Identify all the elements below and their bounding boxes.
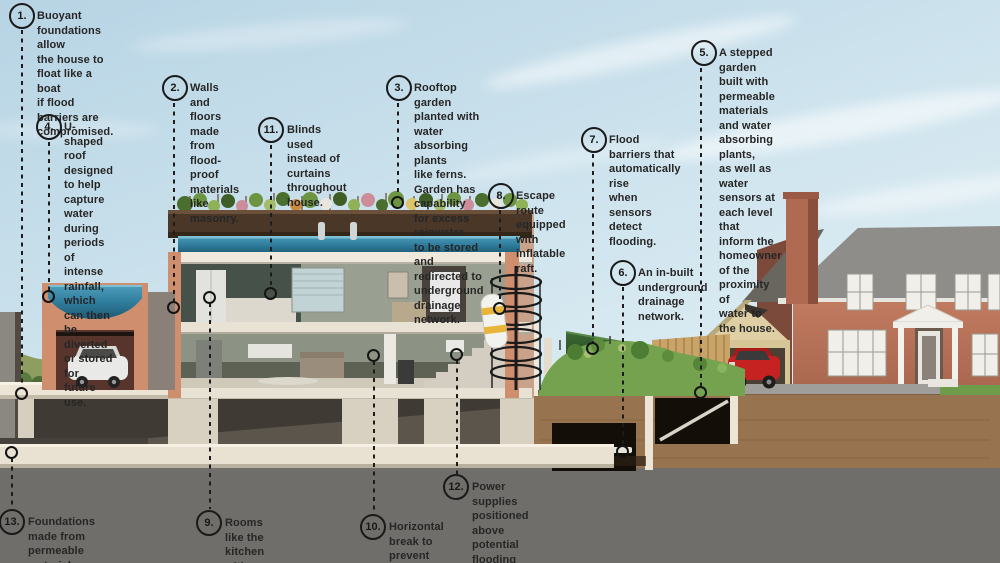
annotation-13-line: [11, 458, 13, 508]
annotation-5-text: A stepped garden built with permeable ma…: [719, 46, 782, 336]
front-steps: [928, 379, 958, 387]
annotation-4-line: [48, 142, 50, 292]
annotation-10-number: 10.: [360, 514, 386, 540]
annotation-11-number: 11.: [258, 117, 284, 143]
annotation-2-number: 2.: [162, 75, 188, 101]
annotation-12-number: 12.: [443, 474, 469, 500]
annotation-6-text: An in-built underground drainage network…: [638, 266, 708, 324]
annotation-9-text: Rooms like the kitchen with most valuabl…: [225, 516, 272, 563]
annotation-9-number: 9.: [196, 510, 222, 536]
annotation-5-number: 5.: [691, 40, 717, 66]
annotation-3-text: Rooftop garden planted with water absorb…: [414, 81, 484, 328]
annotation-3-number: 3.: [386, 75, 412, 101]
annotation-1-number: 1.: [9, 3, 35, 29]
annotation-5-anchor: [694, 386, 707, 399]
annotation-5-line: [700, 68, 702, 386]
annotation-8-line: [499, 210, 501, 303]
annotation-9-anchor: [203, 291, 216, 304]
annotation-2-anchor: [167, 301, 180, 314]
annotation-9-line: [209, 303, 211, 509]
annotation-13-text: Foundations made from permeable material…: [28, 515, 95, 563]
annotation-10-text: Horizontal break to prevent water damage…: [389, 520, 444, 563]
annotation-4-anchor: [42, 290, 55, 303]
annotation-13-anchor: [5, 446, 18, 459]
annotation-2-line: [173, 103, 175, 301]
annotation-7-line: [592, 154, 594, 343]
annotation-6-line: [622, 287, 624, 446]
infographic-stage: 1. Buoyant foundations allow the house t…: [0, 0, 1000, 563]
annotation-12-line: [456, 360, 458, 474]
annotation-8-text: Escape route equipped with inflatable ra…: [516, 189, 566, 276]
annotation-10-anchor: [367, 349, 380, 362]
annotation-4-text: U-shaped roof designed to help capture w…: [64, 120, 113, 410]
annotation-6-number: 6.: [610, 260, 636, 286]
annotation-6-anchor: [616, 445, 629, 458]
annotation-2-text: Walls and floors made from flood-proof m…: [190, 81, 239, 226]
annotation-11-line: [270, 145, 272, 287]
annotation-8-anchor: [493, 302, 506, 315]
annotation-7-anchor: [586, 342, 599, 355]
annotation-11-text: Blinds used instead of curtains througho…: [287, 123, 347, 210]
annotation-13-number: 13.: [0, 509, 25, 535]
annotation-3-anchor: [391, 196, 404, 209]
annotation-10-line: [373, 361, 375, 513]
annotation-12-anchor: [450, 348, 463, 361]
annotation-7-number: 7.: [581, 127, 607, 153]
annotation-1-anchor: [15, 387, 28, 400]
annotation-11-anchor: [264, 287, 277, 300]
annotation-8-number: 8.: [488, 183, 514, 209]
annotation-12-text: Power supplies positioned above potentia…: [472, 480, 529, 563]
annotation-7-text: Flood barriers that automatically rise w…: [609, 133, 681, 249]
annotation-4-number: 4.: [36, 114, 62, 140]
annotation-3-line: [397, 103, 399, 198]
annotation-1-line: [21, 30, 23, 387]
